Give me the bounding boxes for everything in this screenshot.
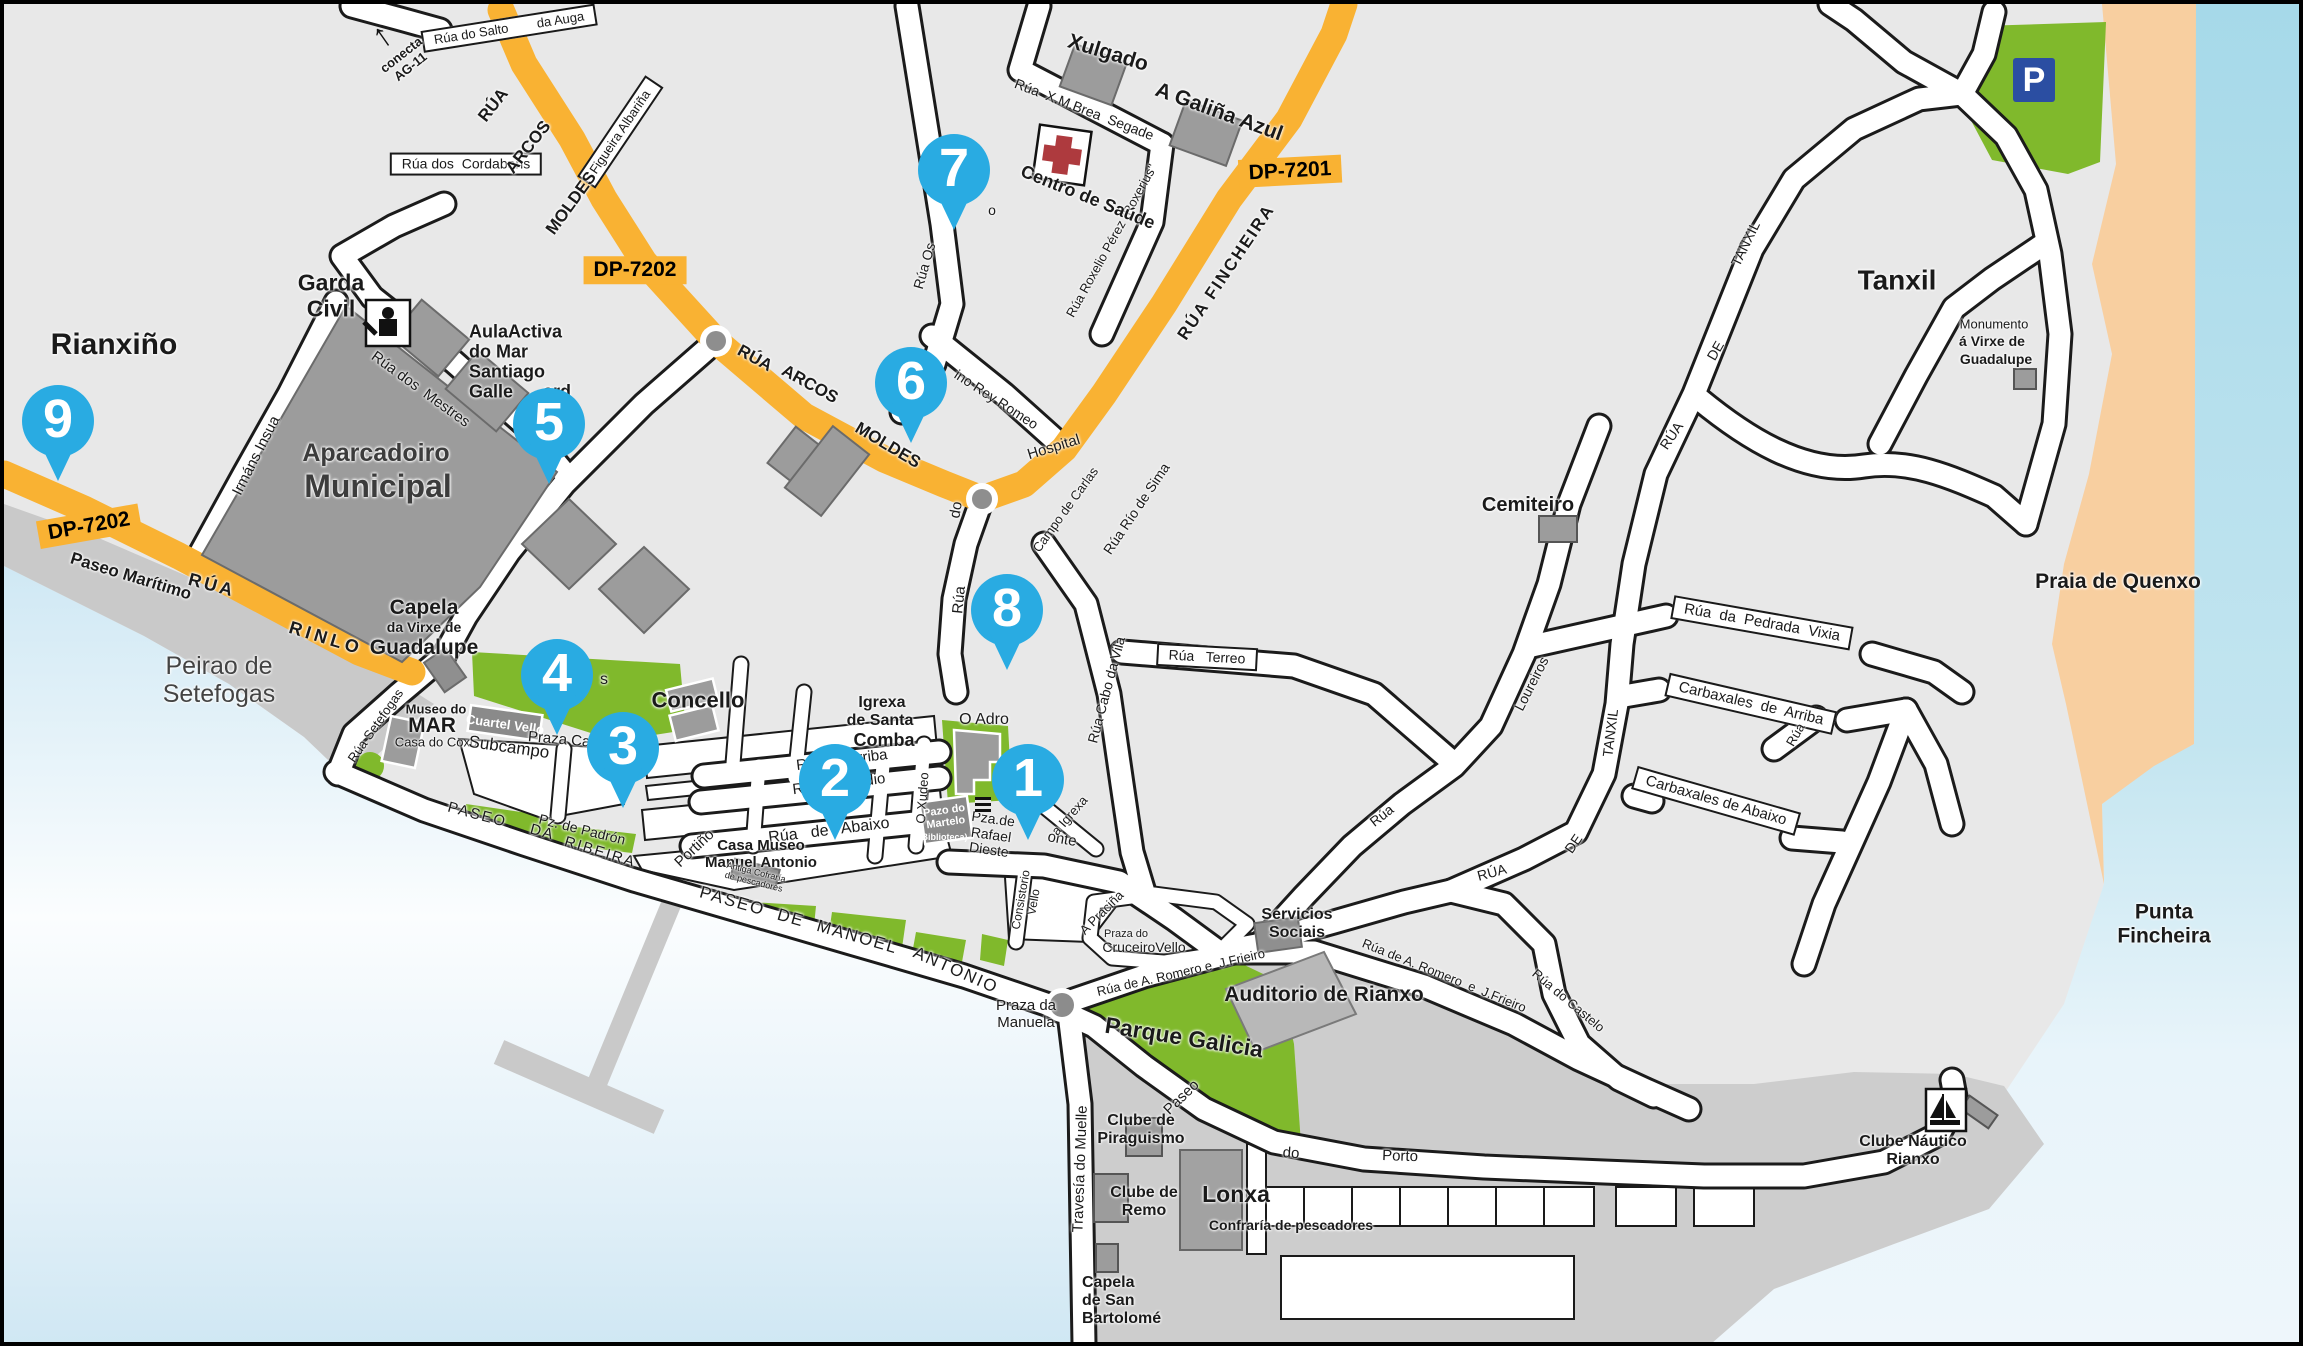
poi-marker-number: 7: [939, 137, 969, 199]
poi-marker-5[interactable]: 5: [513, 388, 585, 460]
cruceiro-vello-label: CruceiroVello: [1102, 940, 1185, 956]
map-canvas: RianxiñoDP-7202Paseo MarítimoRÚARINLOPei…: [0, 0, 2303, 1346]
clube-nautico-label: Clube Náutico Rianxo: [1859, 1133, 1967, 1169]
capela-bartolome-label: Capela de San Bartolomé: [1082, 1274, 1161, 1328]
hospital-rua-label: Rúa: [950, 585, 970, 614]
o-fragment-label: o: [988, 203, 996, 219]
municipal-label: Municipal: [304, 469, 452, 505]
poi-marker-2[interactable]: 2: [799, 744, 871, 816]
hospital-do-label: do: [947, 500, 966, 519]
green-fragment-label: s: [600, 671, 608, 689]
poi-marker-number: 1: [1013, 747, 1043, 809]
biblioteca-label: (Biblioteca): [918, 832, 967, 842]
poi-marker-7[interactable]: 7: [918, 134, 990, 206]
poi-marker-number: 9: [43, 388, 73, 450]
monumento-3-label: Guadalupe: [1960, 352, 2032, 368]
clube-remo-label: Clube de Remo: [1110, 1184, 1178, 1220]
rianxino-label: Rianxiño: [51, 328, 178, 362]
poi-marker-number: 8: [992, 577, 1022, 639]
poi-marker-4[interactable]: 4: [521, 639, 593, 711]
concello-label: Concello: [652, 689, 745, 714]
poi-marker-number: 6: [896, 350, 926, 412]
capela-guadalupe-3-label: Guadalupe: [370, 636, 479, 660]
confraria-label: Confraría de pescadores: [1209, 1218, 1373, 1234]
paseo-porto-2-label: do: [1282, 1145, 1300, 1163]
aparcadoiro-label: Aparcadoiro: [302, 439, 449, 467]
badge-dp7201-label: DP-7201: [1238, 155, 1342, 188]
tanxil-label: Tanxil: [1858, 264, 1937, 295]
poi-marker-1[interactable]: 1: [992, 744, 1064, 816]
poi-marker-number: 2: [820, 747, 850, 809]
igrexa-2-label: de Santa: [847, 712, 914, 730]
stairs-icon: [975, 797, 991, 813]
poi-marker-6[interactable]: 6: [875, 347, 947, 419]
praia-de-quenxo-label: Praia de Quenxo: [2035, 570, 2201, 594]
poi-marker-3[interactable]: 3: [587, 712, 659, 784]
o-adro-label: O Adro: [959, 711, 1009, 729]
praza-da-manuela-label: Praza da Manuela: [996, 998, 1056, 1032]
paseo-porto-3-label: Porto: [1382, 1148, 1418, 1166]
servicios-sociais-label: Servicios Sociais: [1261, 906, 1332, 942]
capela-guadalupe-1-label: Capela: [390, 596, 459, 620]
lonxa-label: Lonxa: [1202, 1182, 1270, 1208]
poi-marker-number: 4: [542, 642, 572, 704]
monumento-2-label: á Virxe de: [1959, 334, 2025, 350]
capela-guadalupe-2-label: da Virxe de: [387, 620, 461, 636]
poi-marker-number: 3: [608, 715, 638, 777]
punta-fincheira-label: Punta Fincheira: [2117, 900, 2210, 947]
casa-do-coxo-label: Casa do Coxo: [395, 736, 477, 751]
poi-marker-9[interactable]: 9: [22, 385, 94, 457]
garda-civil-label: Garda Civil: [298, 270, 364, 322]
badge-dp7202-top-label: DP-7202: [584, 256, 687, 284]
poi-marker-number: 5: [534, 391, 564, 453]
igrexa-1-label: Igrexa: [858, 694, 905, 712]
casa-museo-label: Casa Museo Manuel Antonio: [705, 838, 817, 872]
parking-icon: P: [2013, 58, 2055, 102]
monumento-1-label: Monumento: [1960, 318, 2029, 333]
auditorio-label: Auditorio de Rianxo: [1224, 983, 1424, 1007]
cemiteiro-label: Cemiteiro: [1482, 494, 1574, 516]
peirao-setefogas-label: Peirao de Setefogas: [163, 652, 276, 708]
poi-marker-8[interactable]: 8: [971, 574, 1043, 646]
